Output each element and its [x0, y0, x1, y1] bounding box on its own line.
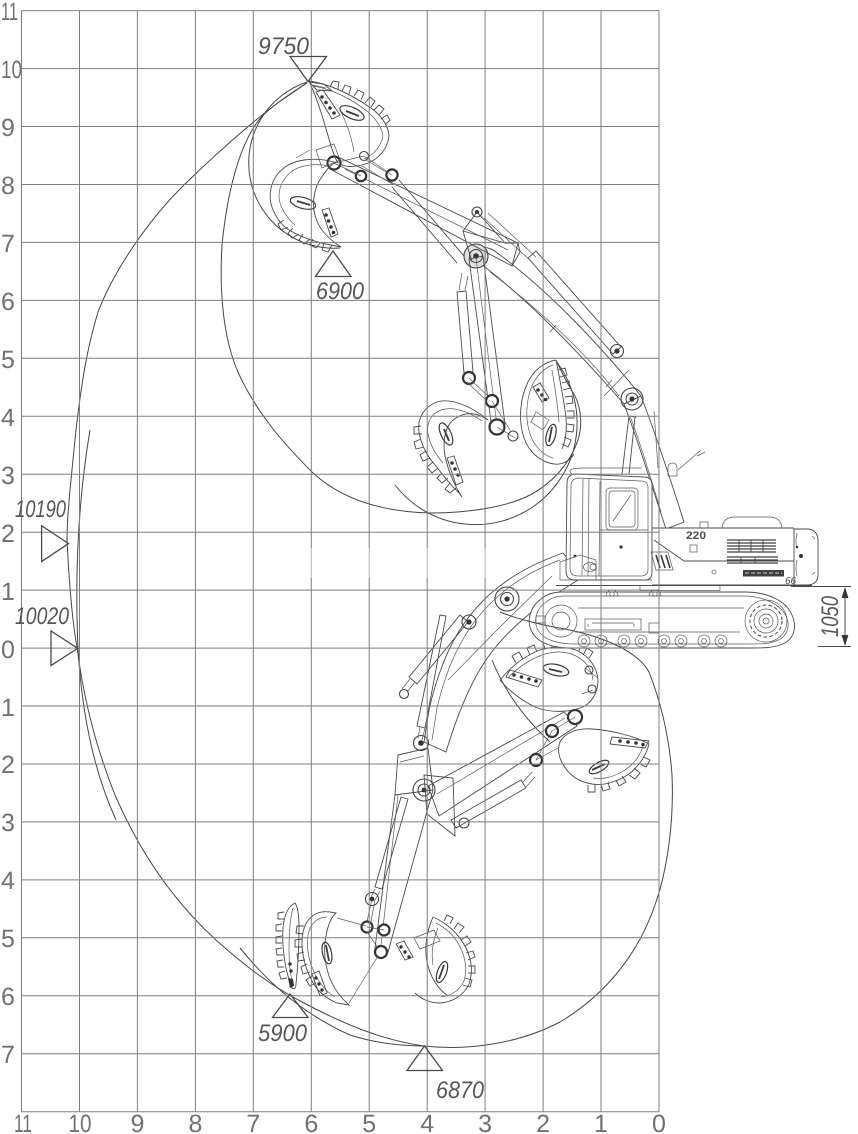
- svg-text:4: 4: [1, 404, 15, 432]
- svg-text:66: 66: [785, 576, 797, 587]
- svg-text:0: 0: [652, 1110, 666, 1134]
- svg-text:4: 4: [420, 1110, 434, 1134]
- svg-text:7: 7: [1, 1041, 15, 1069]
- svg-text:8: 8: [188, 1110, 202, 1134]
- svg-text:0: 0: [1, 636, 15, 664]
- svg-text:220: 220: [686, 530, 706, 542]
- svg-text:6870: 6870: [436, 1077, 485, 1104]
- svg-text:7: 7: [246, 1110, 260, 1134]
- svg-text:8: 8: [1, 172, 15, 200]
- svg-text:6: 6: [304, 1110, 318, 1134]
- svg-text:2: 2: [1, 520, 15, 548]
- svg-text:1: 1: [1, 694, 15, 722]
- svg-text:10: 10: [69, 1110, 92, 1134]
- svg-text:2: 2: [536, 1110, 550, 1134]
- svg-text:11: 11: [14, 1110, 32, 1134]
- svg-text:3: 3: [1, 809, 15, 837]
- svg-text:5900: 5900: [258, 1020, 308, 1047]
- svg-text:1: 1: [1, 578, 15, 606]
- svg-text:6900: 6900: [316, 278, 365, 305]
- svg-text:5: 5: [1, 346, 15, 374]
- svg-text:10: 10: [1, 56, 22, 84]
- svg-text:9: 9: [1, 114, 15, 142]
- svg-text:3: 3: [1, 462, 15, 490]
- svg-text:6: 6: [1, 288, 15, 316]
- svg-text:4: 4: [1, 867, 15, 895]
- svg-text:10020: 10020: [15, 603, 70, 630]
- svg-text:9: 9: [130, 1110, 144, 1134]
- svg-text:6: 6: [1, 983, 15, 1011]
- svg-text:1: 1: [594, 1110, 608, 1134]
- svg-text:10190: 10190: [15, 496, 66, 523]
- svg-text:3: 3: [478, 1110, 492, 1134]
- svg-text:5: 5: [1, 925, 15, 953]
- svg-text:5: 5: [362, 1110, 376, 1134]
- svg-text:2: 2: [1, 751, 15, 779]
- svg-text:11: 11: [1, 0, 18, 26]
- svg-text:7: 7: [1, 230, 15, 258]
- svg-text:1050: 1050: [817, 595, 844, 637]
